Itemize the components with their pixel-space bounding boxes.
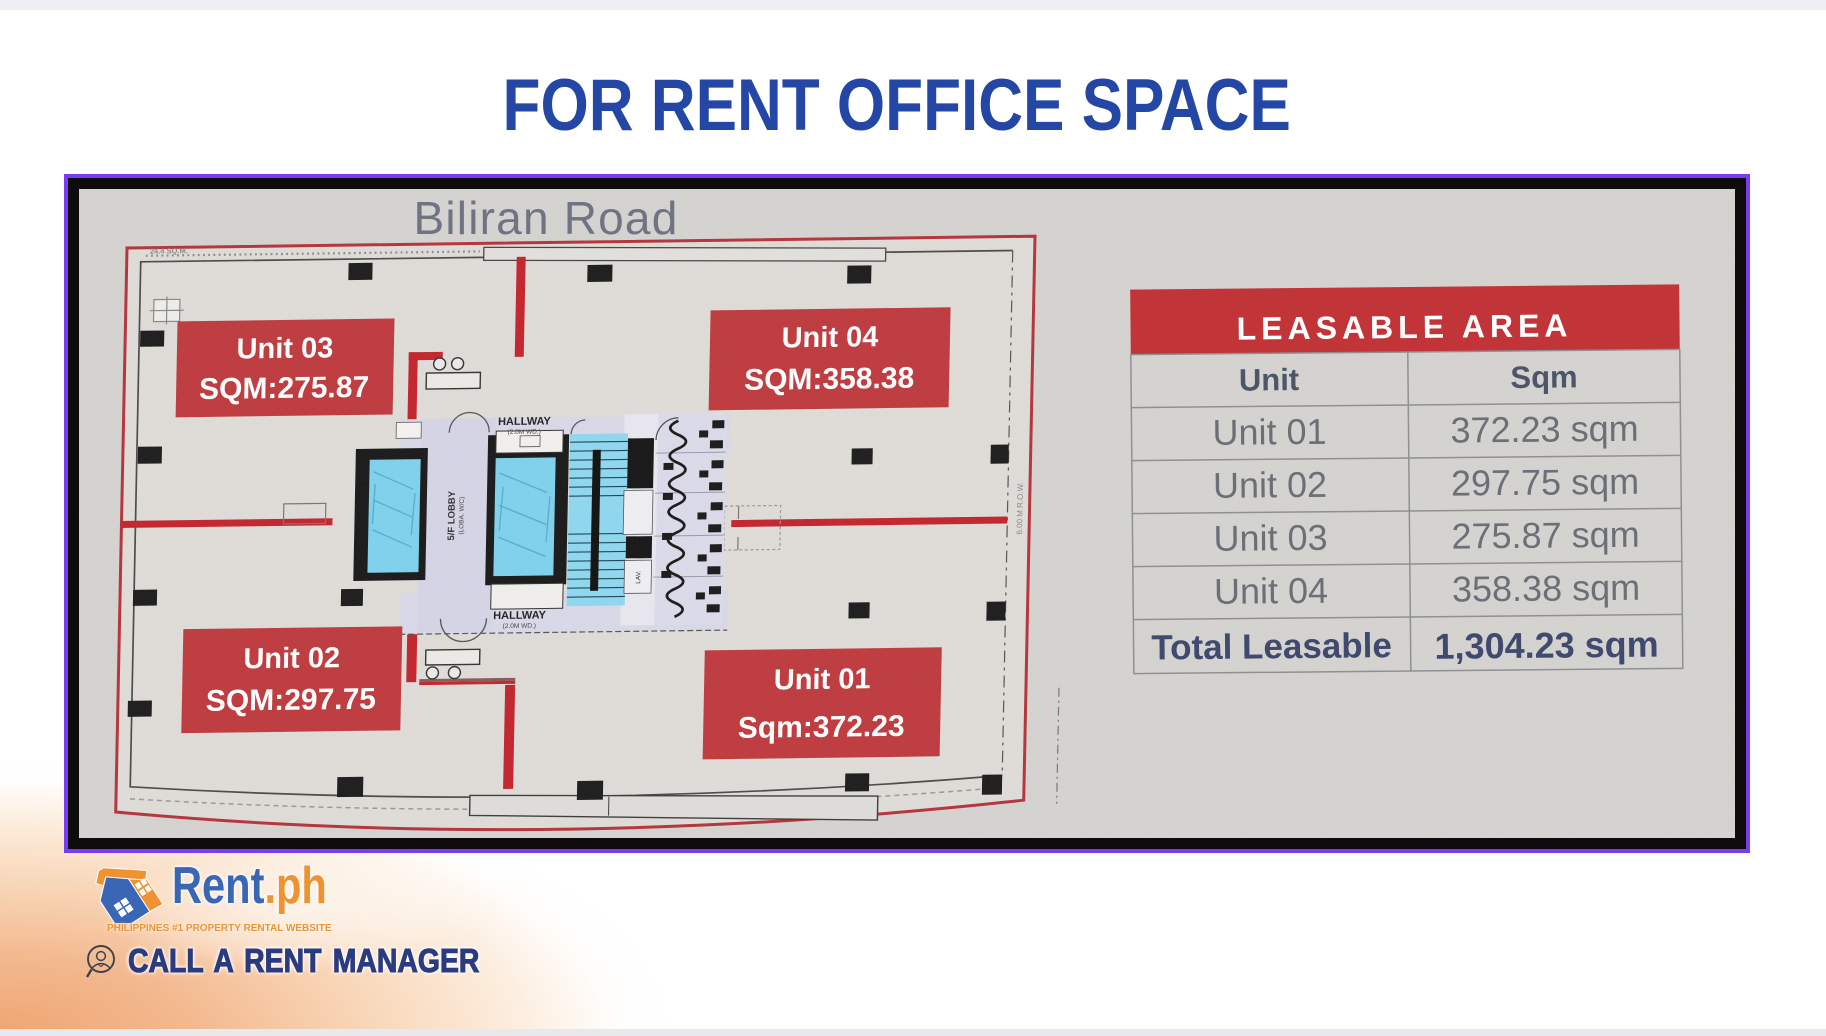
svg-text:Unit 02: Unit 02 xyxy=(1213,464,1327,506)
svg-text:Unit 03: Unit 03 xyxy=(1213,517,1327,559)
svg-text:1,304.23 sqm: 1,304.23 sqm xyxy=(1434,624,1659,667)
svg-text:358.38 sqm: 358.38 sqm xyxy=(1452,567,1641,610)
svg-text:Unit: Unit xyxy=(1239,362,1300,398)
svg-text:Unit 04: Unit 04 xyxy=(1214,570,1328,612)
svg-text:Total Leasable: Total Leasable xyxy=(1151,626,1392,667)
svg-text:Unit 01: Unit 01 xyxy=(1212,411,1326,453)
svg-text:297.75 sqm: 297.75 sqm xyxy=(1451,461,1640,504)
svg-text:372.23 sqm: 372.23 sqm xyxy=(1450,408,1639,451)
svg-text:LEASABLE AREA: LEASABLE AREA xyxy=(1236,307,1572,346)
svg-text:Sqm: Sqm xyxy=(1510,359,1578,395)
svg-text:275.87 sqm: 275.87 sqm xyxy=(1451,514,1640,557)
